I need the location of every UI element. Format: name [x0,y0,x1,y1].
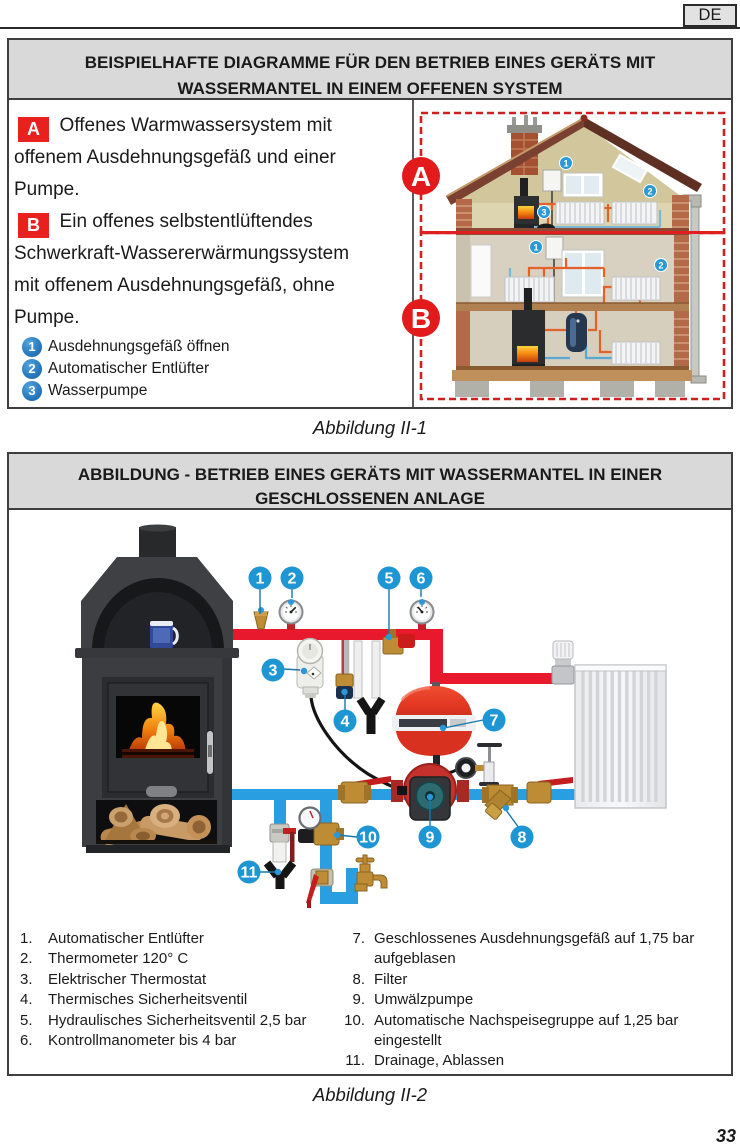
svg-text:3: 3 [541,208,546,218]
svg-text:6: 6 [417,571,426,588]
svg-text:7: 7 [490,713,499,730]
svg-text:4: 4 [341,714,350,731]
svg-text:2: 2 [647,187,652,197]
svg-text:8: 8 [518,830,527,847]
svg-text:2: 2 [288,571,297,588]
svg-text:9: 9 [426,830,435,847]
svg-text:A: A [411,161,431,192]
svg-text:2: 2 [658,261,663,271]
svg-text:1: 1 [533,243,538,253]
svg-text:3: 3 [269,663,278,680]
svg-text:B: B [411,303,431,334]
svg-text:1: 1 [563,159,568,169]
svg-text:1: 1 [256,571,265,588]
svg-text:11: 11 [241,865,258,882]
svg-text:10: 10 [359,830,377,847]
svg-text:5: 5 [385,571,394,588]
